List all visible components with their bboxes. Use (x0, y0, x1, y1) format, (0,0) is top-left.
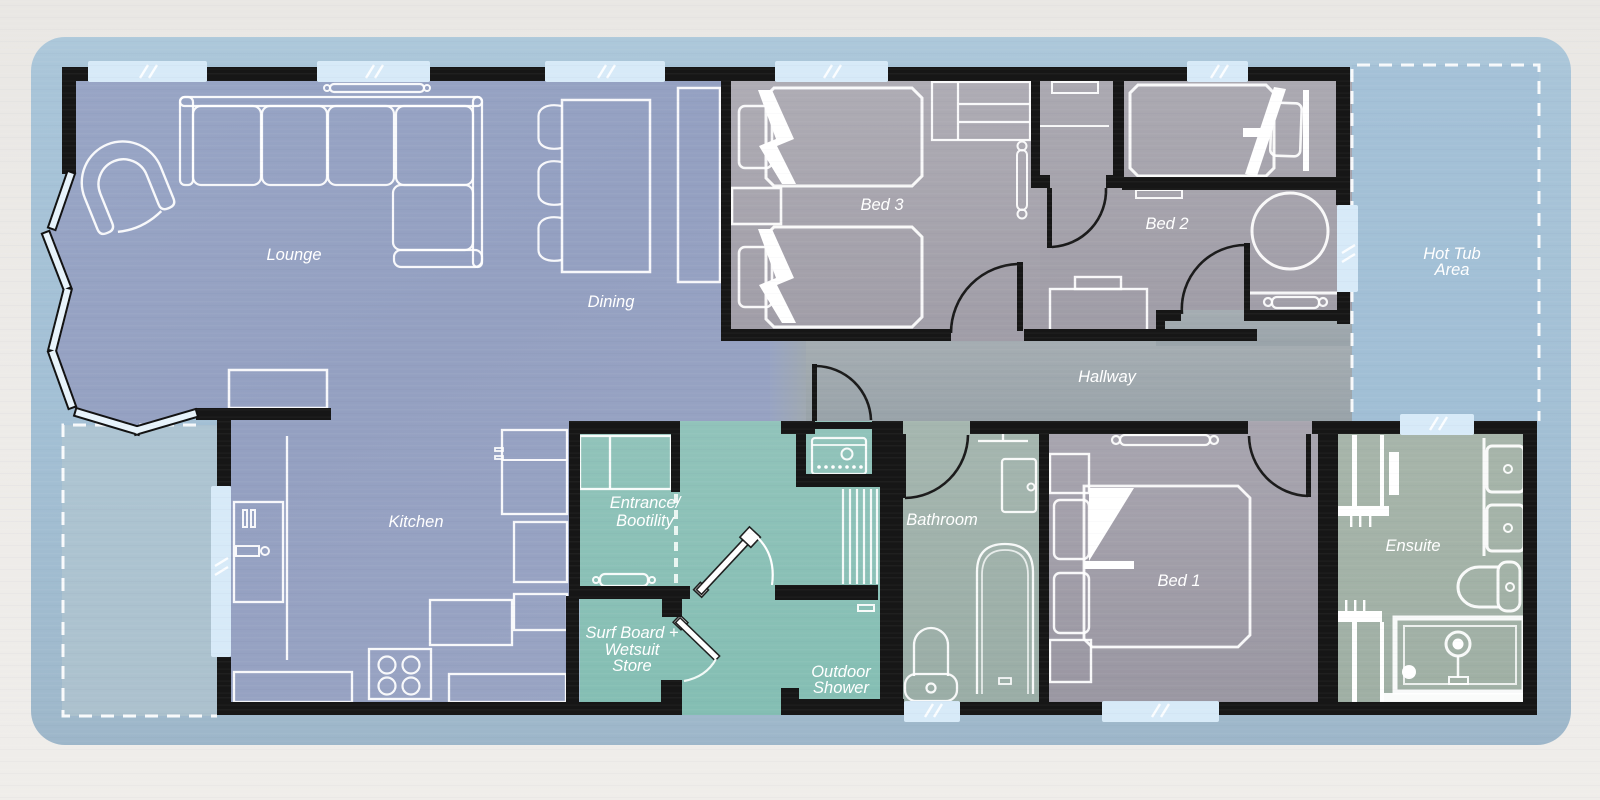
svg-text:Store: Store (612, 657, 651, 675)
svg-text:Shower: Shower (813, 679, 870, 697)
svg-text:Dining: Dining (588, 293, 636, 311)
svg-text:Bed 3: Bed 3 (860, 196, 904, 214)
svg-text:Lounge: Lounge (266, 246, 321, 264)
svg-text:Surf Board +: Surf Board + (585, 624, 678, 642)
svg-text:Bed 2: Bed 2 (1145, 215, 1188, 233)
svg-text:Bed 1: Bed 1 (1157, 572, 1200, 590)
svg-text:Bootility: Bootility (616, 512, 676, 530)
svg-text:Area: Area (1434, 261, 1470, 279)
svg-text:Kitchen: Kitchen (388, 513, 443, 531)
svg-text:Entrance/: Entrance/ (610, 494, 682, 512)
svg-text:Ensuite: Ensuite (1385, 537, 1440, 555)
svg-text:Hallway: Hallway (1078, 368, 1138, 386)
svg-text:Bathroom: Bathroom (906, 511, 978, 529)
